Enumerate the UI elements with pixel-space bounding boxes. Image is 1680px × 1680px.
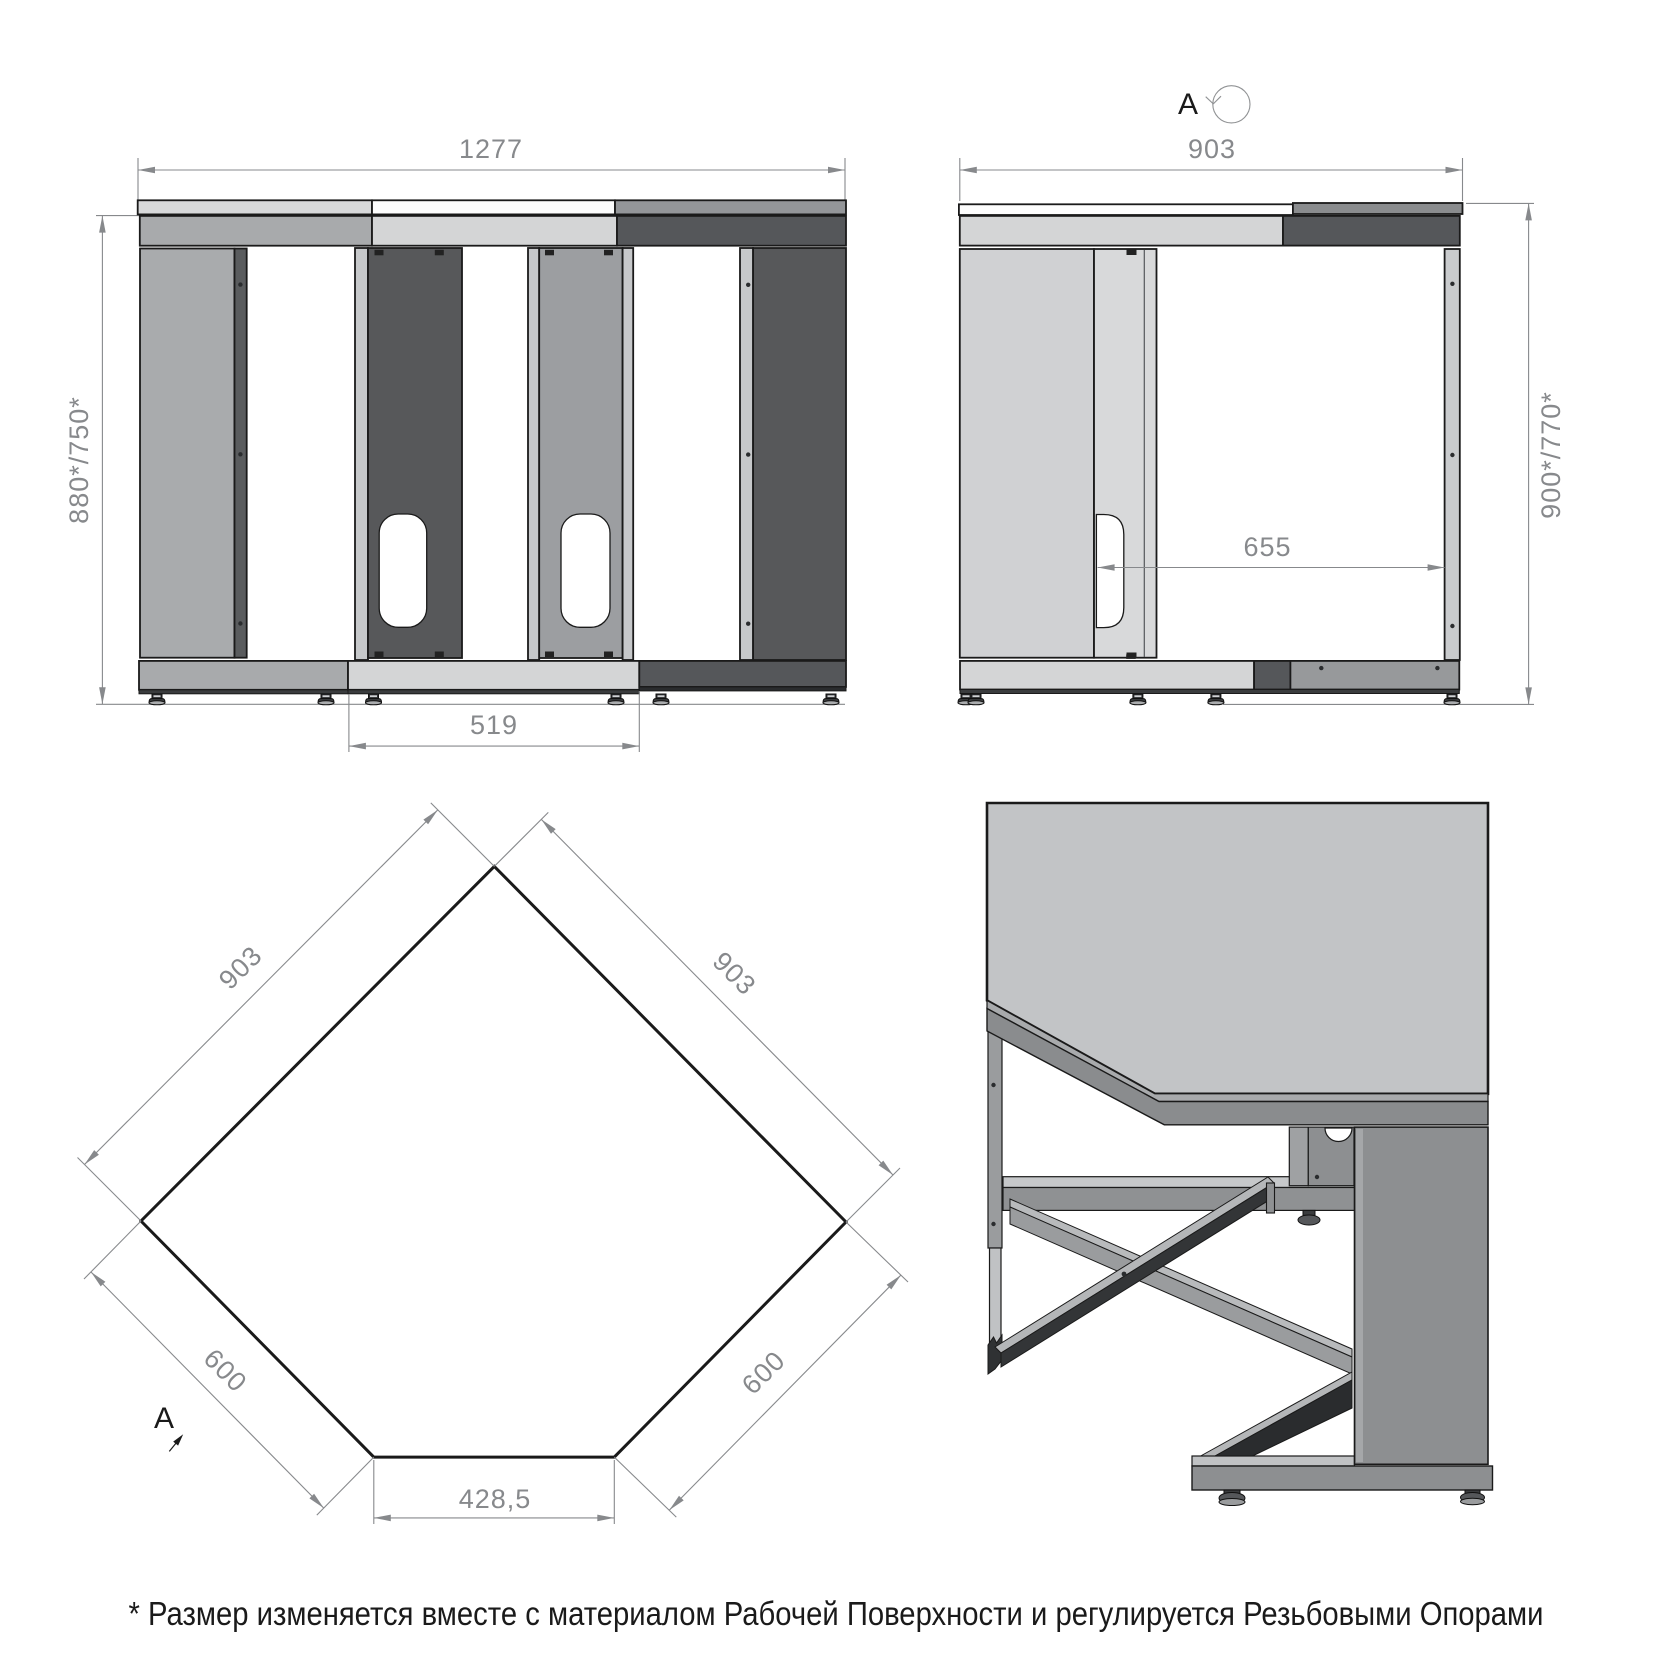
- svg-text:903: 903: [1188, 134, 1236, 164]
- svg-text:A: A: [154, 1402, 174, 1435]
- svg-text:519: 519: [470, 710, 518, 740]
- svg-text:* Размер изменяется вместе с м: * Размер изменяется вместе с материалом …: [129, 1595, 1544, 1632]
- svg-text:A: A: [1178, 88, 1198, 121]
- svg-text:880*/750*: 880*/750*: [64, 396, 94, 524]
- svg-text:428,5: 428,5: [459, 1484, 532, 1514]
- svg-text:1277: 1277: [459, 134, 523, 164]
- svg-text:655: 655: [1243, 532, 1291, 562]
- svg-text:900*/770*: 900*/770*: [1536, 391, 1566, 519]
